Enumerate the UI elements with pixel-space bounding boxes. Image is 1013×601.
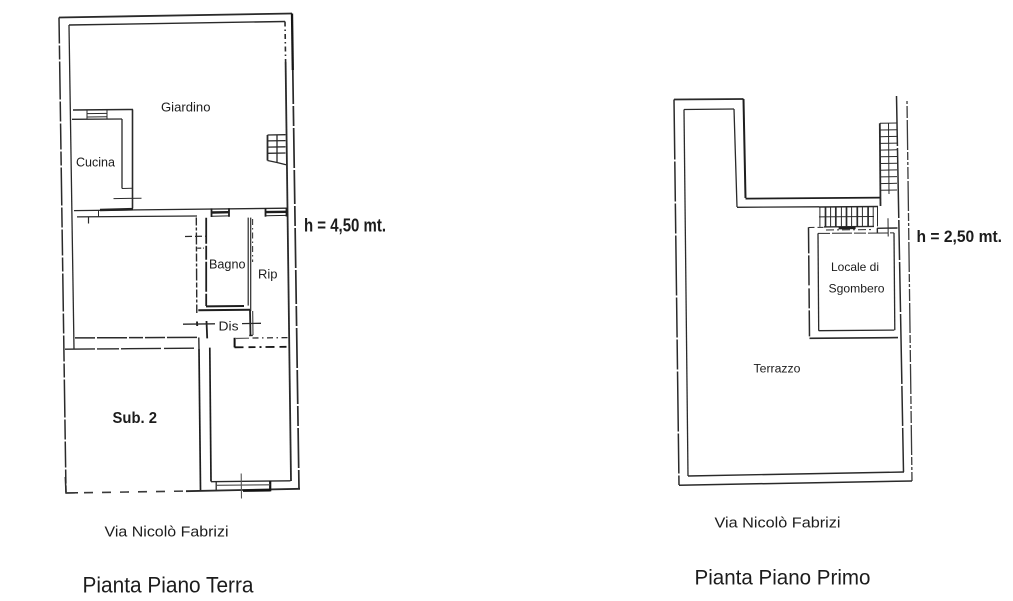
- svg-text:Via Nicolò Fabrizi: Via Nicolò Fabrizi: [105, 524, 229, 541]
- svg-text:Cucina: Cucina: [76, 156, 115, 170]
- svg-text:h = 4,50 mt.: h = 4,50 mt.: [304, 216, 386, 236]
- svg-text:Locale di: Locale di: [831, 260, 879, 274]
- svg-text:Giardino: Giardino: [161, 100, 211, 115]
- svg-text:Dis: Dis: [219, 320, 239, 334]
- svg-text:Sgombero: Sgombero: [829, 282, 885, 296]
- svg-text:Pianta Piano Primo: Pianta Piano Primo: [695, 566, 871, 590]
- svg-text:h = 2,50 mt.: h = 2,50 mt.: [917, 228, 1003, 246]
- svg-text:Rip: Rip: [258, 268, 278, 282]
- svg-text:Terrazzo: Terrazzo: [754, 364, 801, 376]
- svg-text:Bagno: Bagno: [209, 258, 246, 272]
- svg-text:Pianta Piano Terra: Pianta Piano Terra: [83, 573, 255, 598]
- svg-text:Via Nicolò Fabrizi: Via Nicolò Fabrizi: [715, 516, 841, 532]
- svg-text:Sub. 2: Sub. 2: [113, 410, 158, 427]
